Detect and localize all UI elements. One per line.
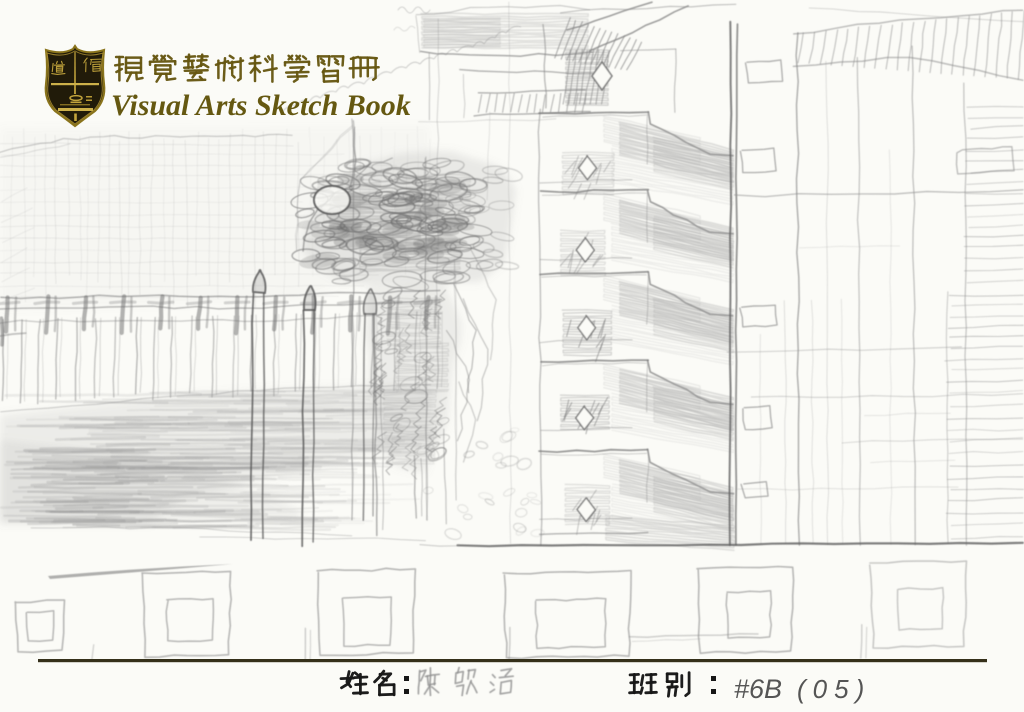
svg-text:#6B: #6B xyxy=(734,674,782,704)
svg-text:(05): (05) xyxy=(797,674,871,704)
svg-text:Visual Arts Sketch Book: Visual Arts Sketch Book xyxy=(111,89,411,122)
